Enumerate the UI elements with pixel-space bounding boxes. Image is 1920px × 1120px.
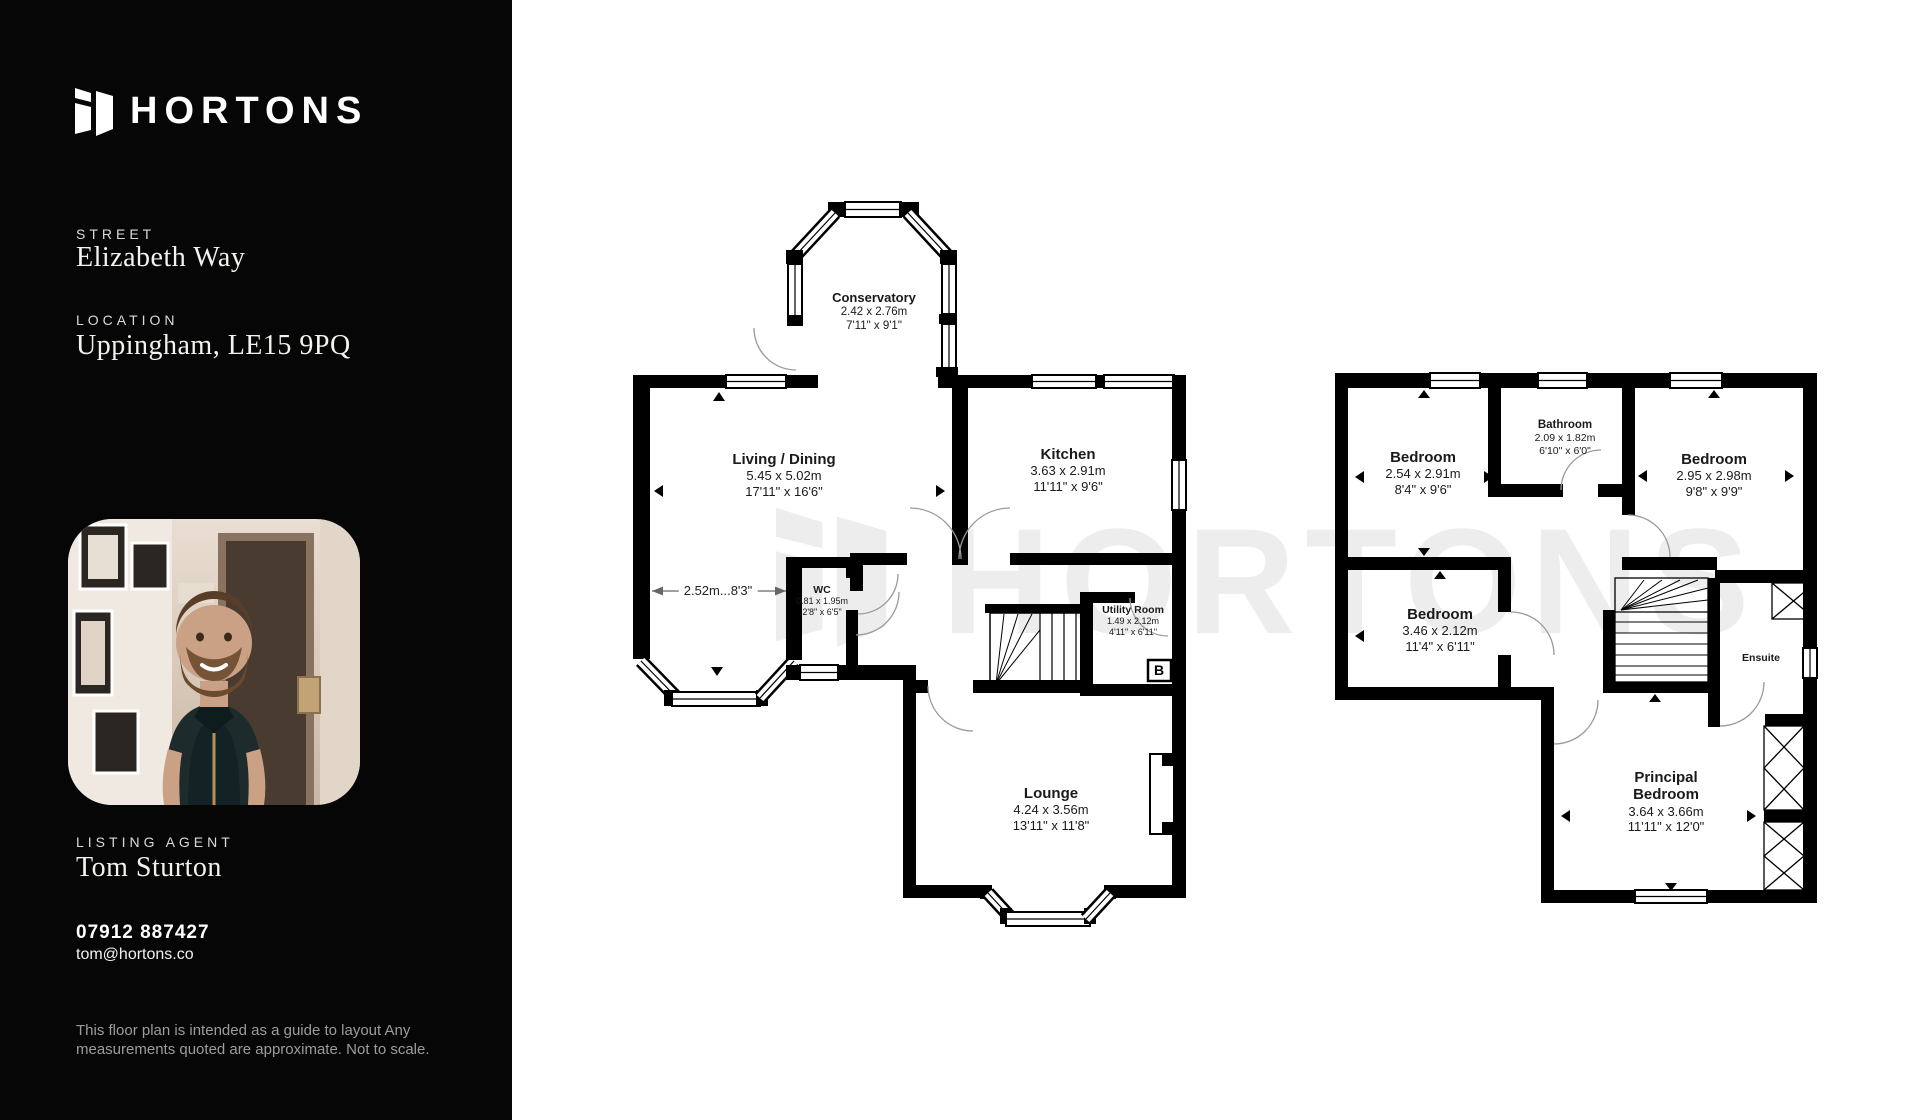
brand-name: HORTONS [130,90,368,133]
agent-phone: 07912 887427 [76,922,210,944]
street-value: Elizabeth Way [76,242,245,274]
location-label: LOCATION [76,312,179,328]
first-floor-stairs [1603,578,1720,693]
brand-logo: HORTONS [75,86,368,136]
ground-floor-stairs [985,604,1088,686]
agent-photo [68,519,360,805]
plan-area: HORTONS [512,0,1920,1120]
floorplan-drawing [512,0,1920,1120]
disclaimer-text: This floor plan is intended as a guide t… [76,1022,434,1060]
floorplan-page: HORTONS STREET Elizabeth Way LOCATION Up… [0,0,1920,1120]
hortons-logo-icon [75,86,115,136]
agent-email: tom@hortons.co [76,946,194,964]
location-value: Uppingham, LE15 9PQ [76,330,351,362]
street-label: STREET [76,226,155,242]
ground-floor-plan [633,202,1186,926]
listing-agent-label: LISTING AGENT [76,834,234,850]
first-floor-plan [1335,373,1817,903]
agent-photo-illustration [68,519,360,805]
dimension-line [652,587,786,596]
fireplace-icon [1150,754,1174,834]
sidebar: HORTONS STREET Elizabeth Way LOCATION Up… [0,0,512,1120]
agent-name: Tom Sturton [76,852,222,884]
